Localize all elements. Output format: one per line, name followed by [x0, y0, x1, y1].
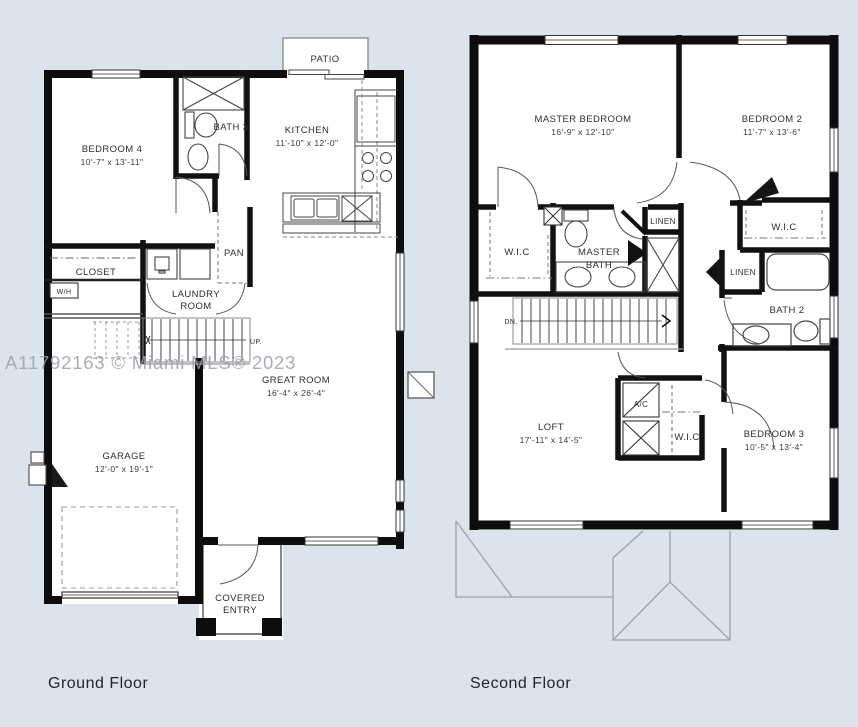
garage-dims: 12'-0" x 19'-1" — [95, 464, 153, 474]
closet-label: CLOSET — [76, 267, 116, 278]
dn-label: DN. — [504, 319, 517, 326]
floorplan-canvas: PATIO BATH 3 KITCHEN 11'-10" x 12'-0" BE… — [0, 0, 858, 727]
ground-floor-plan: PATIO BATH 3 KITCHEN 11'-10" x 12'-0" BE… — [29, 38, 434, 640]
mls-watermark: A11792163 © Miami MLS® 2023 — [5, 352, 296, 373]
loft-label: LOFT — [538, 422, 564, 433]
master-bedroom-dims: 16'-9" x 12'-10" — [551, 127, 614, 137]
exterior-pad-symbol — [408, 372, 434, 398]
bedroom3-wic-label: W.I.C — [674, 432, 699, 443]
bath3-label: BATH 3 — [214, 122, 249, 133]
laundry-label-2: ROOM — [180, 301, 211, 312]
bedroom3-dims: 10'-5" x 13'-4" — [745, 442, 803, 452]
master-bedroom-label: MASTER BEDROOM — [535, 114, 632, 125]
up-label: UP. — [250, 339, 262, 346]
master-bath-label-1: MASTER — [578, 247, 620, 258]
garage-label: GARAGE — [102, 451, 145, 462]
laundry-label-1: LAUNDRY — [172, 289, 220, 300]
ac-label: A/C — [634, 400, 649, 409]
bedroom2-dims: 11'-7" x 13'-6" — [743, 127, 801, 137]
great-room-label: GREAT ROOM — [262, 375, 330, 386]
master-bath-label-2: BATH — [586, 260, 612, 271]
chase-box — [544, 207, 562, 225]
second-floor-plan: MASTER BEDROOM 16'-9" x 12'-10" BEDROOM … — [456, 35, 838, 640]
covered-entry-label-2: ENTRY — [223, 605, 257, 616]
second-floor-title: Second Floor — [470, 675, 571, 692]
loft-dims: 17'-11" x 14'-5" — [520, 435, 583, 445]
bedroom4-dims: 10'-7" x 13'-11" — [81, 157, 144, 167]
kitchen-dims: 11'-10" x 12'-0" — [276, 138, 339, 148]
great-room-dims: 16'-4" x 26'-4" — [267, 388, 325, 398]
bath2-label: BATH 2 — [770, 305, 805, 316]
water-heater-label: W/H — [57, 289, 72, 296]
covered-entry-label-1: COVERED — [215, 593, 265, 604]
entry-post-right — [262, 618, 282, 636]
patio-label: PATIO — [310, 54, 339, 65]
bedroom2-label: BEDROOM 2 — [742, 114, 803, 125]
master-wic-label: W.I.C — [504, 247, 529, 258]
bedroom4-label: BEDROOM 4 — [82, 144, 143, 155]
entry-post-left — [196, 618, 216, 636]
roof-outline — [456, 521, 730, 640]
bedroom3-label: BEDROOM 3 — [744, 429, 805, 440]
kitchen-label: KITCHEN — [285, 125, 330, 136]
bedroom2-wic-label: W.I.C — [771, 222, 796, 233]
floorplan-drawing: PATIO BATH 3 KITCHEN 11'-10" x 12'-0" BE… — [0, 0, 858, 727]
linen-bath2-label: LINEN — [730, 268, 756, 277]
linen-hall-label: LINEN — [650, 217, 676, 226]
ground-floor-title: Ground Floor — [48, 675, 148, 692]
pantry-label: PAN — [224, 248, 244, 259]
